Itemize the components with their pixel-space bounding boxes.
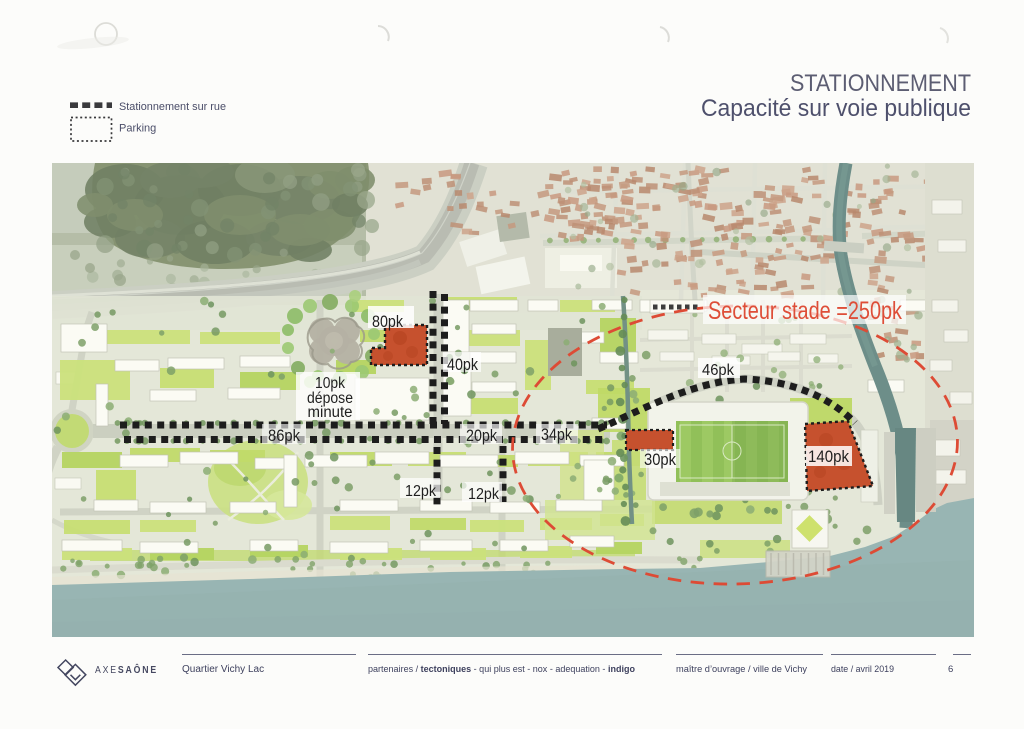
svg-text:minute: minute <box>308 404 353 421</box>
svg-text:86pk: 86pk <box>268 427 301 445</box>
svg-text:12pk: 12pk <box>405 483 437 500</box>
svg-text:140pk: 140pk <box>808 448 850 466</box>
svg-text:Quartier Vichy Lac: Quartier Vichy Lac <box>182 664 264 675</box>
svg-text:12pk: 12pk <box>468 486 500 503</box>
svg-text:46pk: 46pk <box>702 362 735 379</box>
svg-text:34pk: 34pk <box>541 426 573 444</box>
svg-text:20pk: 20pk <box>466 427 498 445</box>
svg-text:AXESAÔNE: AXESAÔNE <box>95 663 158 676</box>
svg-text:6: 6 <box>948 664 953 675</box>
svg-text:80pk: 80pk <box>372 313 404 331</box>
svg-text:30pk: 30pk <box>644 451 677 469</box>
svg-text:partenaires / tectoniques - qu: partenaires / tectoniques - qui plus est… <box>368 664 635 675</box>
svg-text:date / avril 2019: date / avril 2019 <box>831 664 894 675</box>
svg-text:Parking: Parking <box>119 123 156 135</box>
svg-text:40pk: 40pk <box>447 356 479 374</box>
svg-text:Stationnement sur rue: Stationnement sur rue <box>119 101 226 113</box>
svg-text:Capacité sur voie publique: Capacité sur voie publique <box>701 95 971 122</box>
svg-text:maître d’ouvrage / ville de Vi: maître d’ouvrage / ville de Vichy <box>676 664 807 675</box>
svg-text:STATIONNEMENT: STATIONNEMENT <box>790 70 971 97</box>
svg-text:Secteur stade =250pk: Secteur stade =250pk <box>708 297 902 325</box>
